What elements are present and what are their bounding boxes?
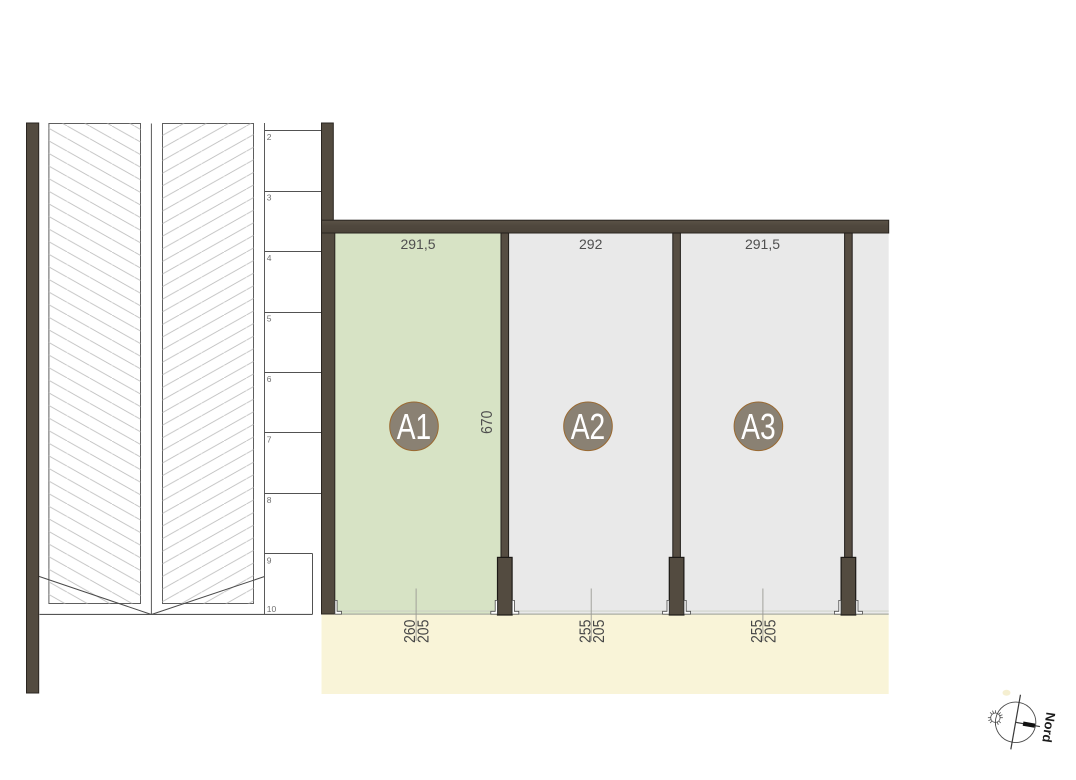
svg-text:6: 6: [267, 374, 272, 384]
svg-text:205: 205: [590, 620, 608, 643]
svg-text:292: 292: [579, 236, 603, 252]
svg-text:Nord: Nord: [1039, 711, 1058, 743]
svg-text:9: 9: [267, 556, 272, 566]
svg-text:A1: A1: [397, 407, 431, 447]
svg-text:2: 2: [267, 132, 272, 142]
svg-text:205: 205: [415, 620, 433, 643]
svg-text:291,5: 291,5: [400, 236, 435, 252]
svg-text:7: 7: [267, 435, 272, 445]
svg-text:4: 4: [267, 253, 272, 263]
svg-text:8: 8: [267, 495, 272, 505]
svg-text:A2: A2: [571, 407, 605, 447]
svg-text:291,5: 291,5: [745, 236, 780, 252]
svg-text:670: 670: [478, 411, 496, 434]
svg-text:205: 205: [762, 620, 780, 643]
svg-text:A3: A3: [741, 407, 775, 447]
svg-text:10: 10: [267, 604, 277, 614]
svg-text:5: 5: [267, 314, 272, 324]
svg-text:3: 3: [267, 193, 272, 203]
